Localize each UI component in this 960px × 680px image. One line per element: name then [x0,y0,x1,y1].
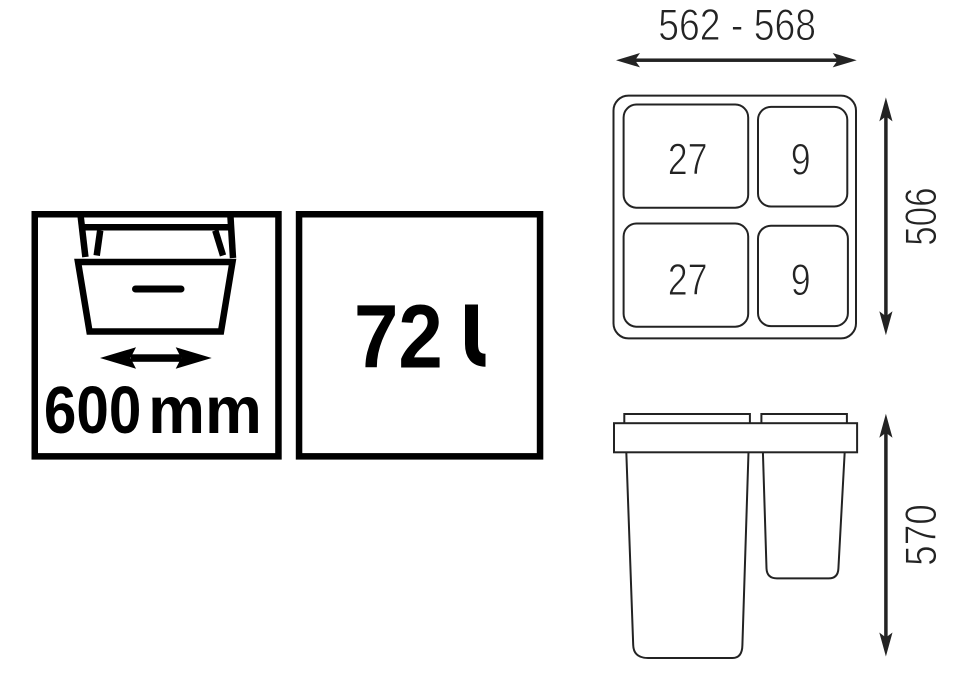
svg-text:570: 570 [896,504,946,566]
svg-text:72: 72 [354,287,443,388]
svg-text:506: 506 [897,187,946,245]
svg-text:562 - 568: 562 - 568 [658,0,816,50]
svg-text:mm: mm [148,373,262,448]
svg-text:9: 9 [791,134,811,185]
svg-text:9: 9 [791,254,811,305]
svg-text:600: 600 [44,373,141,448]
svg-text:27: 27 [668,254,708,305]
svg-text:27: 27 [668,134,708,185]
